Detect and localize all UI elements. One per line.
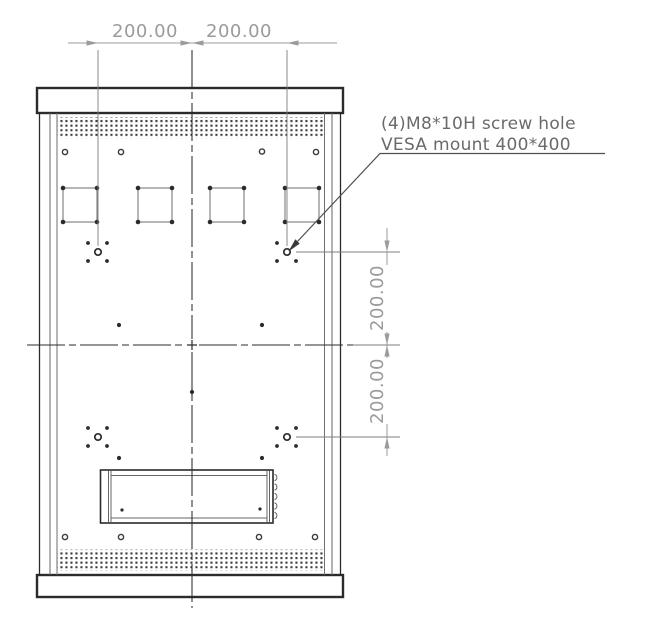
top-cap xyxy=(37,88,343,113)
dim-top-right-label: 200.00 xyxy=(206,21,272,42)
top-vent-grille xyxy=(57,117,325,139)
dim-right-lower-label: 200.00 xyxy=(367,358,388,424)
bottom-vent-grille xyxy=(57,550,325,572)
annotation-line1: (4)M8*10H screw hole xyxy=(381,114,576,134)
connector-bay xyxy=(101,470,277,523)
dim-top-left-label: 200.00 xyxy=(112,21,178,42)
bottom-cap xyxy=(37,575,343,597)
vesa-mount-drawing: 200.00 200.00 200.00 200.00 (4)M8*10H sc… xyxy=(0,0,650,624)
annotation-line2: VESA mount 400*400 xyxy=(381,135,571,155)
dim-right-upper-label: 200.00 xyxy=(367,265,388,331)
